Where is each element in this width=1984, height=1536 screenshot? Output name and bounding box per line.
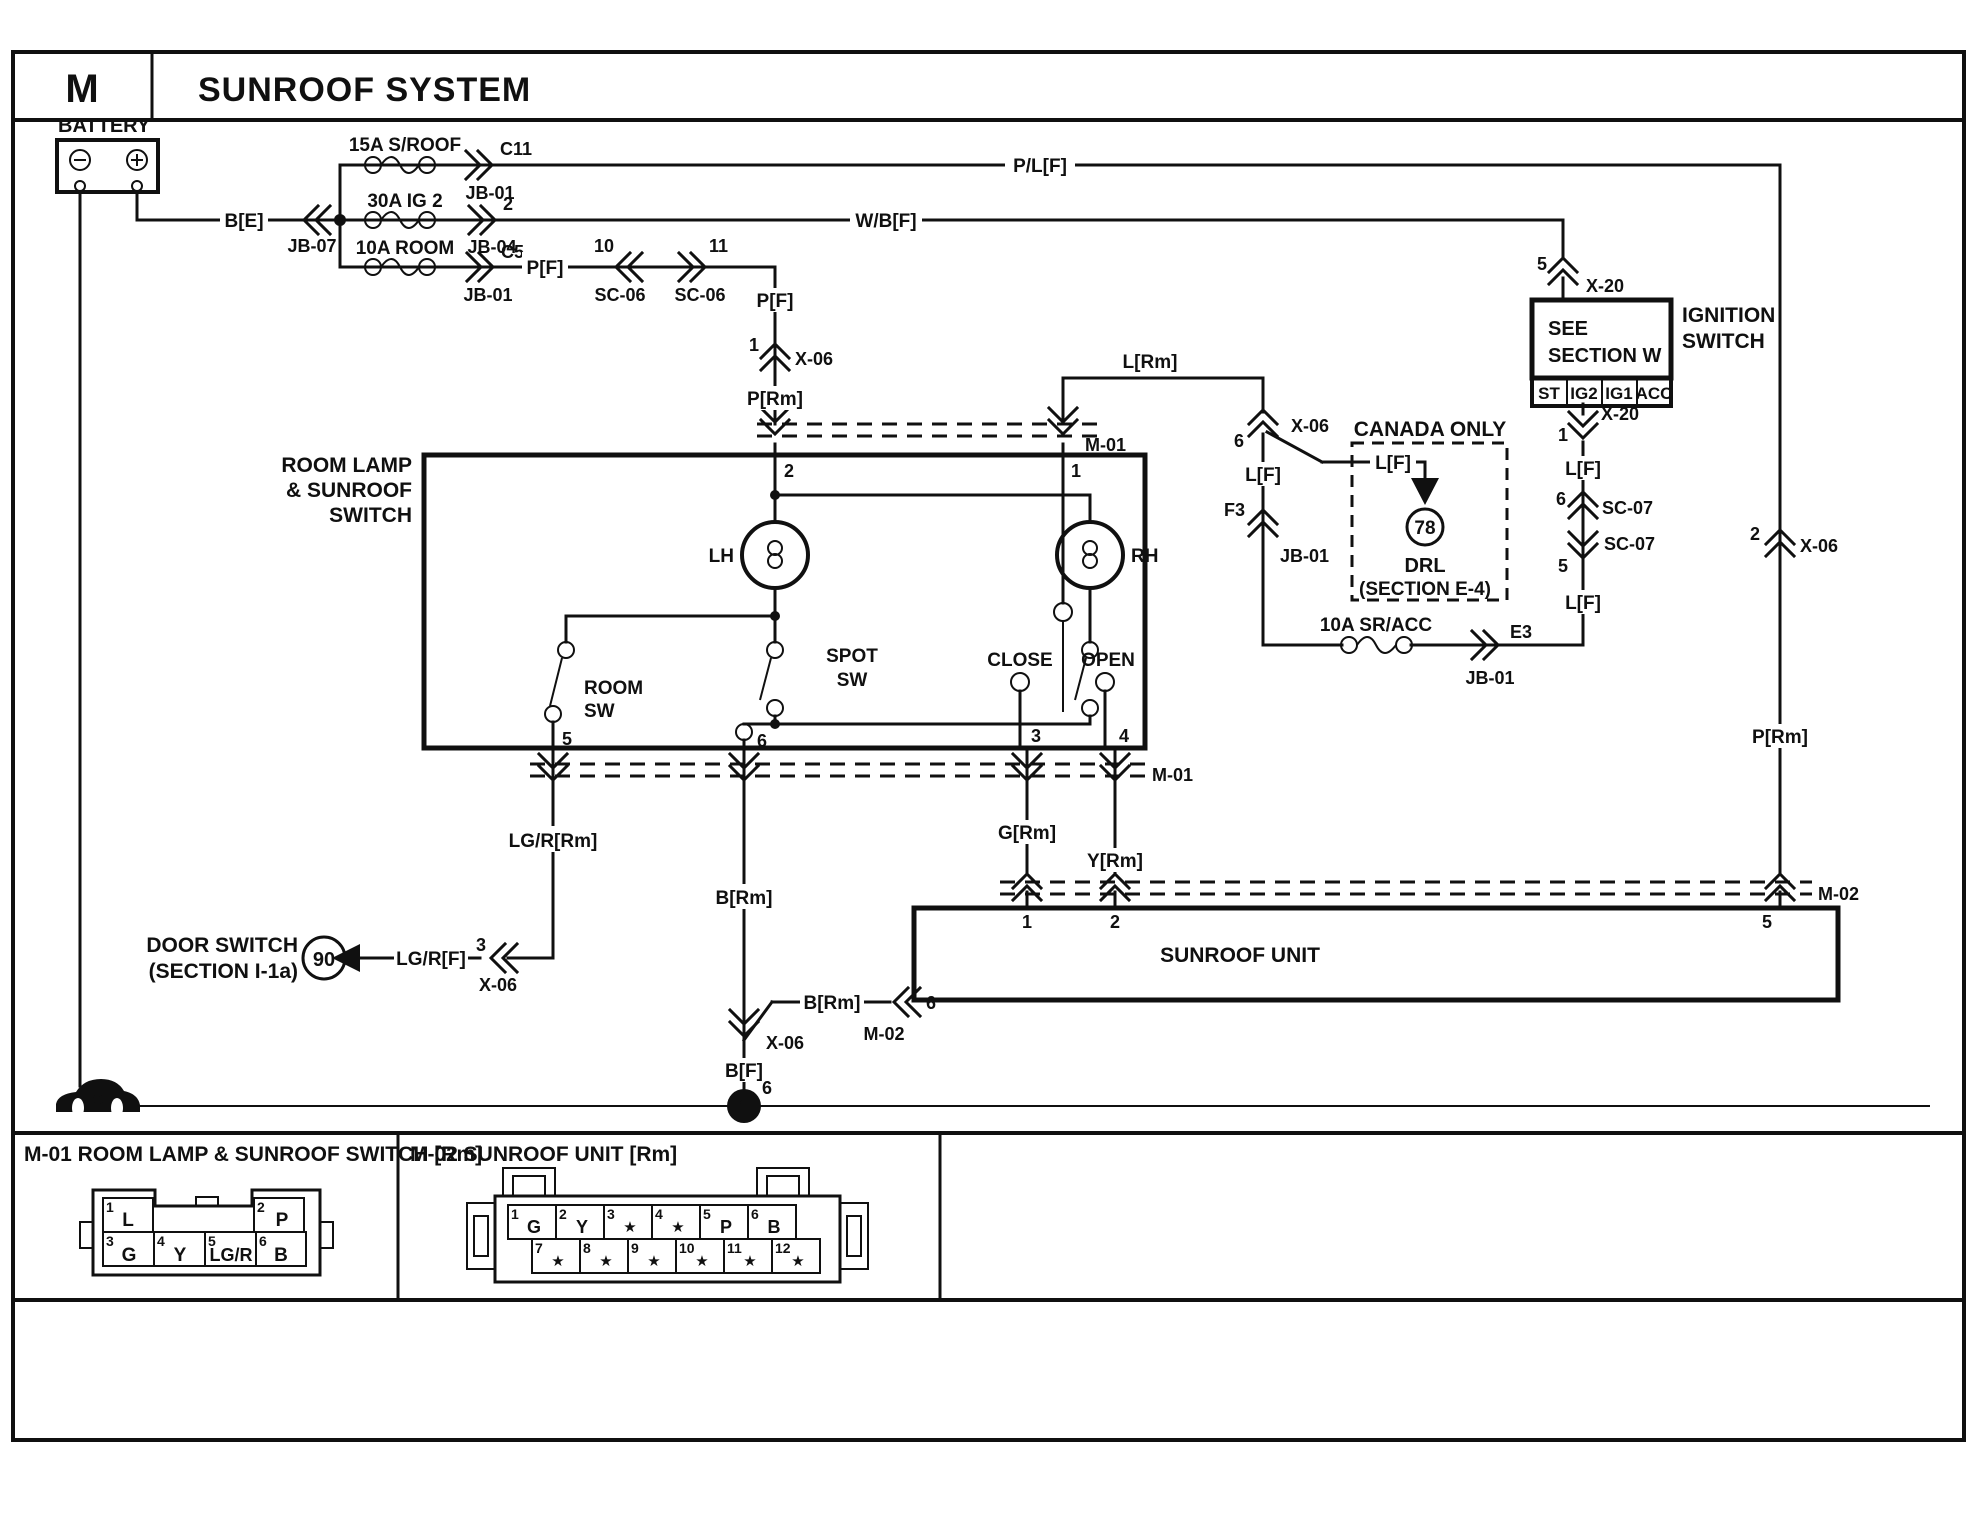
m02-pin-wire: ★: [791, 1253, 804, 1270]
pin-4-label: 4: [1119, 726, 1129, 746]
pin-11: 11: [709, 236, 728, 256]
connector-label-m01: M-01: [1085, 435, 1126, 455]
lh-lamp: LH: [709, 522, 808, 588]
fuse-label: 10A ROOM: [356, 238, 455, 259]
junction-dot: [334, 214, 346, 226]
ignition-switch: 5 X-20 SEE SECTION W ST IG2 IG1 ACC IGNI…: [1532, 254, 1775, 614]
pin-1: 1: [1558, 425, 1568, 445]
pin-10: 10: [594, 236, 614, 256]
connector-label-m01: M-01: [1152, 765, 1193, 785]
fuse-10a-room: 10A ROOM: [356, 238, 455, 275]
m01-pin-num: 1: [106, 1199, 114, 1215]
terminal-acc: ACC: [1636, 384, 1673, 403]
room-sw-label-2: SW: [584, 701, 615, 722]
m01-pin-num: 3: [106, 1233, 114, 1249]
connector-label-x20: X-20: [1586, 276, 1624, 296]
m02-pin-wire: P: [720, 1217, 732, 1237]
m02-pin-wire: ★: [695, 1253, 708, 1270]
lh-label: LH: [709, 546, 734, 567]
pin-5: 5: [1537, 254, 1547, 274]
right-feed-column: 2 X-06 P[Rm]: [1747, 524, 1838, 748]
battery-label: BATTERY: [58, 115, 151, 137]
door-switch-circuit-num: 90: [313, 949, 335, 971]
wire-label-lgr-rm: LG/R[Rm]: [509, 831, 598, 852]
m02-pin-num: 4: [655, 1206, 663, 1222]
pin-1: 1: [749, 335, 759, 355]
room-switch: ROOM SW 5: [545, 642, 643, 749]
unit-pin-2: 2: [1110, 912, 1120, 932]
wire-label-lrm: L[Rm]: [1123, 352, 1178, 373]
m01-pin-wire: G: [122, 1245, 137, 1266]
ignition-see: SEE: [1548, 318, 1588, 340]
connector-label-x06: X-06: [1291, 416, 1329, 436]
sunroof-wiring-diagram: M SUNROOF SYSTEM: [0, 0, 1984, 1536]
close-label: CLOSE: [987, 650, 1052, 671]
m02-pin-wire: ★: [551, 1253, 564, 1270]
pin-5-label: 5: [562, 729, 572, 749]
wire-label-lf: L[F]: [1565, 593, 1601, 614]
m02-pin-num: 11: [727, 1240, 742, 1256]
wire-label-plf: P/L[F]: [1013, 156, 1067, 177]
drl-name: DRL: [1404, 555, 1445, 577]
wire-label-prm: P[Rm]: [747, 389, 803, 410]
door-switch-name-1: DOOR SWITCH: [146, 934, 298, 957]
connector-label-f3: F3: [1224, 500, 1245, 520]
ignition-section-w: SECTION W: [1548, 345, 1661, 367]
m01-pin-num: 2: [257, 1199, 265, 1215]
open-label: OPEN: [1081, 650, 1135, 671]
fuse-30a-ig2: 30A IG 2: [365, 191, 443, 228]
fuse-label: 10A SR/ACC: [1320, 615, 1433, 636]
m02-pin-wire: Y: [576, 1217, 588, 1237]
m01-pin-num: 6: [259, 1233, 267, 1249]
m02-pin-wire: G: [527, 1217, 541, 1237]
drl-section: (SECTION E-4): [1359, 579, 1491, 600]
m02-pin-wire: ★: [743, 1253, 756, 1270]
unit-pin-6: 6: [926, 993, 936, 1013]
wire-label-brm: B[Rm]: [716, 888, 773, 909]
sunroof-unit-feeds: G[Rm] Y[Rm] M-02 1 2 5 6: [926, 820, 1859, 1013]
canada-only-drl: CANADA ONLY L[F] 78 DRL (SECTION E-4): [1352, 418, 1507, 600]
connector-label-jb01: JB-01: [1465, 668, 1514, 688]
m01-pin-num: 4: [157, 1233, 165, 1249]
pin-2-label: 2: [784, 461, 794, 481]
m02-pin-num: 6: [751, 1206, 759, 1222]
m01-pin-wire: P: [276, 1210, 289, 1231]
pin-3-label: 3: [1031, 726, 1041, 746]
connector-label-sc06: SC-06: [674, 285, 725, 305]
connector-label-jb01: JB-01: [463, 285, 512, 305]
switch-box-name-3: SWITCH: [329, 504, 412, 527]
m02-pin-wire: ★: [599, 1253, 612, 1270]
connector-label-x06: X-06: [766, 1033, 804, 1053]
wire-label-pf: P[F]: [527, 258, 564, 279]
m01-pin-wire: LG/R: [210, 1245, 253, 1265]
ground-point-num: 1: [739, 1097, 750, 1118]
wire-label-lf: L[F]: [1245, 465, 1281, 486]
canada-title: CANADA ONLY: [1354, 418, 1506, 441]
wire-label-prm2: P[Rm]: [1752, 727, 1808, 748]
pin-3: 3: [476, 935, 486, 955]
sunroof-unit-label: SUNROOF UNIT: [1160, 944, 1320, 967]
wire-label-pf2: P[F]: [757, 291, 794, 312]
connector-label-c11: C11: [500, 139, 532, 159]
fuse-15a-sroof: 15A S/ROOF: [349, 135, 461, 173]
unit-pin-5: 5: [1762, 912, 1772, 932]
connector-label-sc06: SC-06: [594, 285, 645, 305]
unit-pin-1: 1: [1022, 912, 1032, 932]
section-code: M: [65, 67, 98, 111]
canada-wire-lf: L[F]: [1375, 453, 1411, 474]
m02-pin-num: 3: [607, 1206, 615, 1222]
car-ground-symbol: G: [56, 1079, 140, 1118]
canada-circuit-num: 78: [1414, 518, 1435, 539]
switch-box-name-2: & SUNROOF: [286, 479, 412, 502]
terminal-ig1: IG1: [1605, 384, 1632, 403]
pin-6-label: 6: [757, 731, 767, 751]
pin-1-label: 1: [1071, 461, 1081, 481]
m02-pin-wire: ★: [671, 1219, 684, 1236]
page-title: SUNROOF SYSTEM: [198, 71, 531, 109]
m02-pin-num: 7: [535, 1240, 543, 1256]
rh-label: RH: [1131, 546, 1158, 567]
m01-connector-rows: M-01 M-01: [530, 424, 1193, 785]
m02-pin-num: 2: [559, 1206, 567, 1222]
pin-6: 6: [1556, 489, 1566, 509]
switch-box-name-1: ROOM LAMP: [281, 454, 412, 477]
spot-sw-label-2: SW: [837, 670, 868, 691]
connector-label-x06: X-06: [479, 975, 517, 995]
connector-label-sc07: SC-07: [1604, 534, 1655, 554]
battery: BATTERY: [57, 115, 158, 192]
ground-pin-6: 6: [762, 1078, 772, 1098]
m02-pin-num: 12: [775, 1240, 791, 1256]
fuse-label: 30A IG 2: [367, 191, 442, 212]
m01-pin-wire: B: [274, 1245, 288, 1266]
connector-label-jb07: JB-07: [287, 236, 336, 256]
schematic-page: M SUNROOF SYSTEM: [0, 0, 1984, 1536]
wire-label-lgr-f: LG/R[F]: [396, 949, 466, 970]
wire-label-lf: L[F]: [1565, 459, 1601, 480]
door-switch-name-2: (SECTION I-1a): [149, 960, 298, 983]
pin-5: 5: [1558, 556, 1568, 576]
room-lamp-sunroof-switch: ROOM LAMP & SUNROOF SWITCH 2 1 LH RH: [281, 454, 1158, 751]
connector-label-x06: X-06: [795, 349, 833, 369]
wire-label-brm2: B[Rm]: [804, 993, 861, 1014]
connector-label-x20: X-20: [1601, 404, 1639, 424]
m02-pin-num: 9: [631, 1240, 639, 1256]
connector-label-e3: E3: [1510, 622, 1532, 642]
ignition-name-2: SWITCH: [1682, 330, 1765, 353]
fuse-label: 15A S/ROOF: [349, 135, 461, 156]
m02-pin-num: 8: [583, 1240, 591, 1256]
m02-pin-wire: ★: [623, 1219, 636, 1236]
pin-2: 2: [503, 194, 513, 214]
fuse-10a-sracc: 10A SR/ACC: [1320, 615, 1433, 653]
connector-label-m02: M-02: [1818, 884, 1859, 904]
wire-label-yrm: Y[Rm]: [1087, 851, 1143, 872]
ignition-name-1: IGNITION: [1682, 304, 1775, 327]
m02-pin-wire: B: [768, 1217, 781, 1237]
connector-label-c5: C5: [501, 242, 524, 262]
pin-6: 6: [1234, 431, 1244, 451]
m02-connector-detail: M-02 SUNROOF UNIT [Rm] 1 G 2 Y 3 ★ 4 ★ 5…: [410, 1143, 868, 1282]
spot-sw-label-1: SPOT: [826, 646, 878, 667]
connector-label-jb01: JB-01: [1280, 546, 1329, 566]
m02-pin-wire: ★: [647, 1253, 660, 1270]
sunroof-unit: SUNROOF UNIT: [914, 908, 1838, 1000]
connector-label-x06: X-06: [1800, 536, 1838, 556]
m02-pin-num: 10: [679, 1240, 695, 1256]
wire-label-be: B[E]: [224, 211, 263, 232]
m02-pin-num: 1: [511, 1206, 519, 1222]
door-switch-branch: LG/R[Rm] 3 X-06 LG/R[F] 90 DOOR SWITCH (…: [146, 826, 610, 995]
m02-title: M-02 SUNROOF UNIT [Rm]: [410, 1143, 677, 1166]
m01-pin-wire: Y: [174, 1245, 187, 1266]
wire-label-bf: B[F]: [725, 1061, 763, 1082]
sunroof-open-close-switch: CLOSE OPEN 3 4: [987, 455, 1135, 748]
connector-label-sc07: SC-07: [1602, 498, 1653, 518]
terminal-ig2: IG2: [1570, 384, 1597, 403]
room-sw-label-1: ROOM: [584, 678, 643, 699]
connector-label-m02: M-02: [863, 1024, 904, 1044]
down-arrow: [1411, 478, 1439, 505]
pin-2: 2: [1750, 524, 1760, 544]
car-ground-letter: G: [93, 1091, 104, 1107]
wire-label-grm: G[Rm]: [998, 823, 1056, 844]
terminal-st: ST: [1538, 384, 1560, 403]
wire-label-wbf: W/B[F]: [855, 211, 916, 232]
m01-pin-wire: L: [122, 1210, 134, 1231]
m02-pin-num: 5: [703, 1206, 711, 1222]
